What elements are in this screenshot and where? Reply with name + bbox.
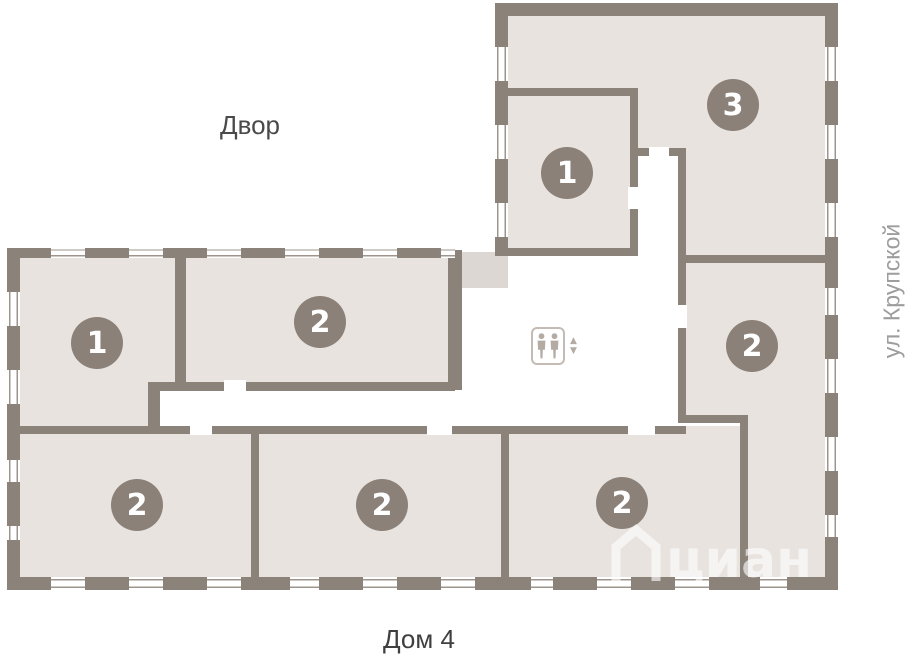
unit-badge: 2 <box>356 479 408 531</box>
wall-corridor-bottom-a <box>20 426 190 434</box>
unit-badge: 2 <box>294 296 346 348</box>
wall-left-windows <box>7 248 20 590</box>
door-room3 <box>649 147 669 157</box>
wall-room3-bottom <box>678 255 831 263</box>
joint-bottom-wall-1 <box>245 577 290 590</box>
wall-room1wing-top <box>498 88 638 96</box>
arrow-up-icon: ▲ <box>570 336 577 346</box>
wall-room1wing-bottom <box>498 248 638 256</box>
floorplan: 1 3 2 1 2 2 2 2 ▲ ▼ циан Двор <box>0 0 910 661</box>
wall-left-divider <box>175 252 186 390</box>
wall-corridor-end <box>148 382 160 430</box>
door-left-upper-east <box>224 380 246 392</box>
wall-corridor-bottom-b <box>212 426 628 434</box>
joint-bottom-wall-2 <box>483 577 531 590</box>
unit-badge: 2 <box>726 320 778 372</box>
elevator-arrows-icon: ▲ ▼ <box>570 336 577 356</box>
door-room1wing <box>628 187 639 209</box>
wall-bottom-divider-2 <box>501 430 509 580</box>
joint-left-wall-mid <box>7 420 20 460</box>
wall-right2-left-a <box>678 263 686 305</box>
wall-left2-bottom-b <box>246 382 455 391</box>
corner-wing-topleft <box>495 3 508 43</box>
unit-badge: 3 <box>707 79 759 131</box>
joint-right-wall-mid <box>825 248 838 288</box>
cian-watermark-text: циан <box>666 530 812 585</box>
wall-room1wing-right-a <box>630 88 638 187</box>
room-floor-left-upper-west-ext <box>13 384 160 430</box>
unit-badge: 1 <box>541 147 593 199</box>
entrance-vestibule-floor <box>462 252 508 288</box>
elevator-people-icon <box>535 333 561 360</box>
corridor-strip <box>638 152 678 262</box>
courtyard-label: Двор <box>200 110 300 141</box>
door-bottom-middle <box>427 425 452 435</box>
arrow-down-icon: ▼ <box>570 346 577 356</box>
unit-badge: 2 <box>111 479 163 531</box>
unit-badge: 2 <box>596 477 648 529</box>
elevator-icon: ▲ ▼ <box>531 327 577 365</box>
wall-hall-left <box>448 250 462 390</box>
door-right-middle <box>676 305 687 328</box>
wall-corridor-bottom-c <box>655 426 686 434</box>
wall-left-top-windows <box>7 248 455 258</box>
wall-strip-right <box>678 148 686 258</box>
cian-watermark: циан <box>608 523 833 590</box>
elevator-cabin-icon <box>531 327 565 365</box>
wall-right2-step-h <box>678 415 748 423</box>
corner-bottom-left-h <box>7 577 47 590</box>
cian-house-icon <box>616 530 656 581</box>
house-label: Дом 4 <box>349 624 489 655</box>
corner-wing-topright <box>825 3 838 43</box>
wall-right-windows <box>825 3 838 590</box>
door-bottom-right <box>628 425 655 435</box>
wall-strip-top-left <box>633 148 649 156</box>
wall-bottom-divider-1 <box>251 430 259 580</box>
street-label: ул. Крупской <box>877 219 907 364</box>
unit-badge: 1 <box>71 317 123 369</box>
wall-right2-left-b <box>678 328 686 423</box>
corner-left-top-h <box>7 248 47 258</box>
door-bottom-left <box>190 425 212 435</box>
wall-wing-top <box>495 3 838 16</box>
